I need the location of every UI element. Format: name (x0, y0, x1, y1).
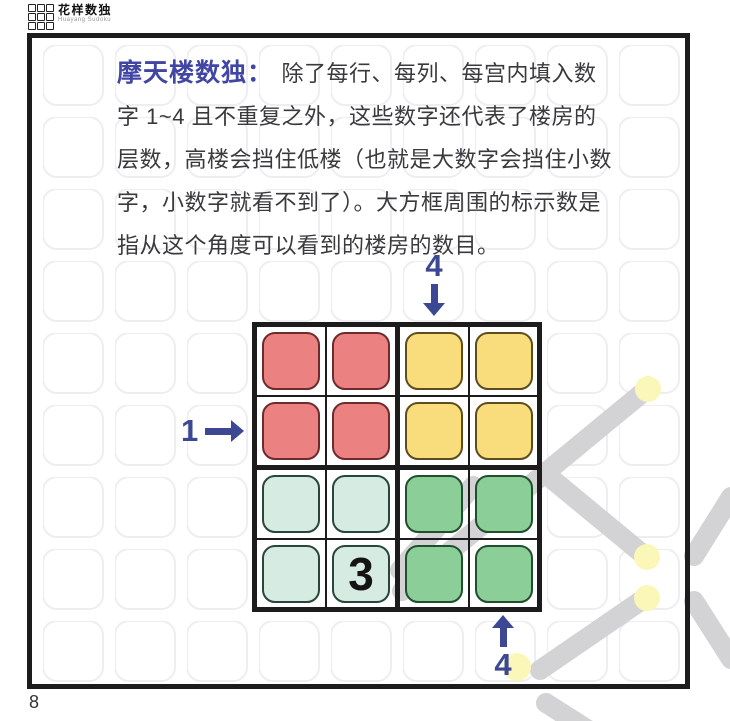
tile-green (405, 475, 463, 533)
tile-yellow (475, 332, 533, 390)
grid-cell (257, 540, 325, 607)
arrow-down-icon (423, 284, 445, 316)
grid-cell (400, 327, 468, 395)
tile-mint (262, 545, 320, 603)
given-number: 3 (348, 547, 374, 601)
grid-cell (400, 470, 468, 538)
sudoku-grid-icon (28, 3, 54, 30)
page-number: 8 (29, 692, 39, 713)
tile-yellow (475, 402, 533, 460)
grid-cell (327, 470, 395, 538)
book-page: 花样数独 Huayang Sudoku (0, 0, 730, 721)
tile-yellow (405, 402, 463, 460)
logo-title: 花样数独 (58, 3, 112, 17)
grid-cell (470, 540, 537, 607)
publisher-logo: 花样数独 Huayang Sudoku (28, 3, 112, 30)
clue-bottom: 4 (483, 615, 523, 681)
puzzle-title: 摩天楼数独 (117, 59, 247, 87)
tile-green (475, 545, 533, 603)
grid-cell (257, 397, 325, 465)
grid-cell (257, 470, 325, 538)
instructions-line-1: 摩天楼数独：除了每行、每列、每宫内填入数 (117, 52, 657, 95)
grid-cell (470, 470, 537, 538)
instructions-line-3: 层数，高楼会挡住低楼（也就是大数字会挡住小数 (117, 138, 657, 181)
grid-cell (327, 327, 395, 395)
instructions-line-2: 字 1~4 且不重复之外，这些数字还代表了楼房的 (117, 95, 657, 138)
tile-mint: 3 (332, 545, 390, 603)
tile-green (475, 475, 533, 533)
grid-cell (470, 327, 537, 395)
title-colon: ： (247, 59, 273, 87)
grid-cell (470, 397, 537, 465)
grid-cell (327, 397, 395, 465)
puzzle-grid: 3 (252, 322, 542, 612)
arrow-right-icon (205, 420, 244, 442)
instructions-line-1-text: 除了每行、每列、每宫内填入数 (282, 61, 597, 86)
clue-bottom-number: 4 (494, 649, 511, 681)
clue-left: 1 (181, 413, 251, 449)
clue-top-number: 4 (425, 250, 442, 282)
grid-cell (400, 540, 468, 607)
clue-top: 4 (414, 250, 454, 316)
tile-red (332, 402, 390, 460)
tile-red (262, 332, 320, 390)
arrow-up-icon (492, 615, 514, 647)
grid-cell (400, 397, 468, 465)
logo-text: 花样数独 Huayang Sudoku (58, 3, 112, 24)
tile-green (405, 545, 463, 603)
instructions-line-4: 字，小数字就看不到了）。大方框周围的标示数是 (117, 181, 657, 224)
tile-mint (332, 475, 390, 533)
logo-subtitle: Huayang Sudoku (58, 17, 112, 24)
tile-red (332, 332, 390, 390)
grid-cell: 3 (327, 540, 395, 607)
instructions-line-5: 指从这个角度可以看到的楼房的数目。 (117, 224, 657, 267)
grid-cell (257, 327, 325, 395)
tile-red (262, 402, 320, 460)
tile-mint (262, 475, 320, 533)
instructions: 摩天楼数独：除了每行、每列、每宫内填入数 字 1~4 且不重复之外，这些数字还代… (117, 52, 657, 267)
tile-yellow (405, 332, 463, 390)
clue-left-number: 1 (181, 415, 198, 447)
